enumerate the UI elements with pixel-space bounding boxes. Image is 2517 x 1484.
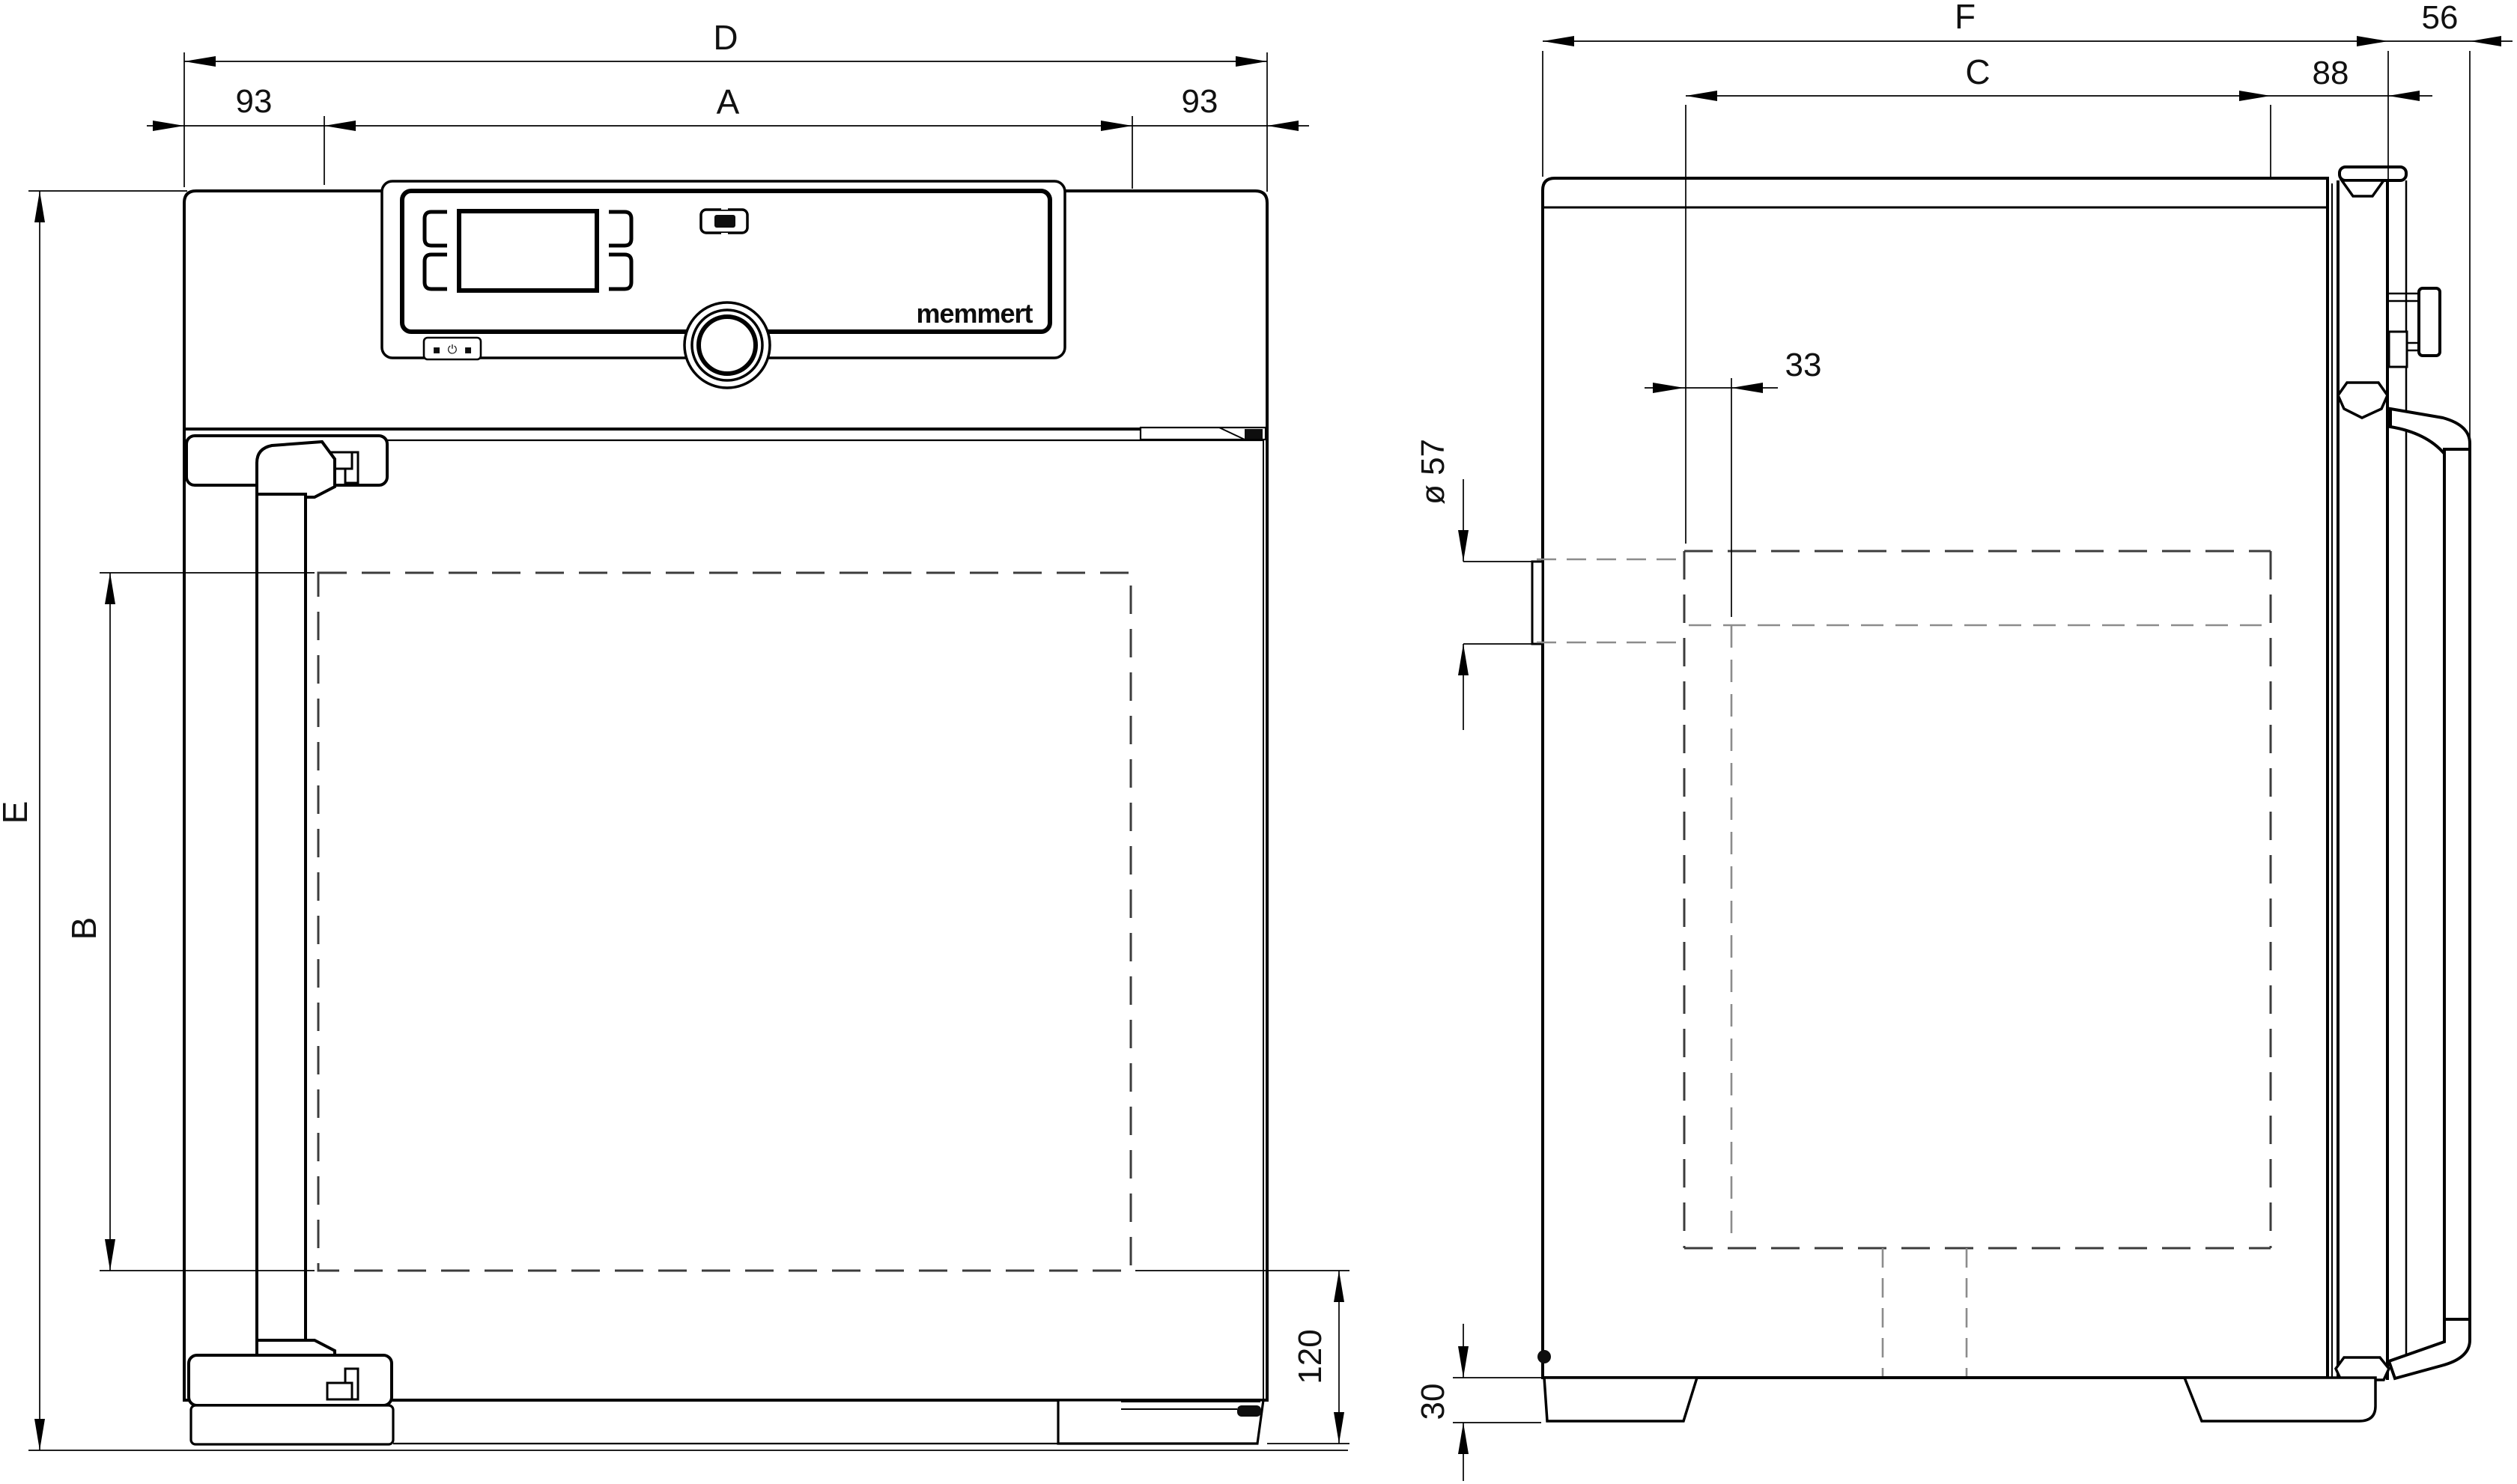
hinge-top-right [1141, 428, 1266, 440]
control-panel: memmert ▪ ⏻ ▪ [382, 181, 1065, 388]
door-handle [186, 436, 392, 1405]
dim-label-30: 30 [1415, 1384, 1451, 1420]
hinge-upper-knuckle [2338, 383, 2387, 418]
display-screen [459, 211, 597, 291]
front-feet [191, 1400, 1263, 1444]
dim-label-C: C [1965, 52, 1990, 91]
dim-label-F: F [1955, 0, 1976, 36]
brand-logo: memmert [916, 298, 1033, 329]
dimension-E: E [0, 191, 1348, 1450]
handle-bottom-arm [2389, 1319, 2470, 1378]
heat-indicator-icon: ▪ [433, 342, 441, 356]
dim-label-88: 88 [2313, 55, 2349, 91]
dim-label-120: 120 [1292, 1329, 1329, 1384]
dim-label-93-right: 93 [1182, 83, 1218, 120]
hinge-top-cap [2340, 167, 2406, 180]
door-latch-knob [2389, 288, 2440, 367]
front-view: memmert ▪ ⏻ ▪ [184, 181, 1267, 1444]
vent-pipe-dashed [1537, 559, 1967, 1376]
dimension-A-93: A 93 93 [147, 82, 1309, 189]
side-back-foot [1544, 1378, 1697, 1421]
handle-grip-bar [257, 494, 306, 1342]
cable-gland [1537, 1350, 1551, 1363]
dim-label-33: 33 [1785, 347, 1822, 383]
dim-label-D: D [713, 18, 738, 57]
vent-pipe-stub [1532, 562, 1543, 644]
hinge-top-notch [2342, 180, 2384, 196]
dim-label-93-left: 93 [236, 83, 273, 120]
dim-label-dia57: ø 57 [1415, 439, 1451, 505]
usable-space-dashed [1689, 625, 2262, 1243]
control-knob [684, 302, 770, 388]
interior-chamber-dashed-side [1684, 551, 2271, 1248]
front-right-foot [1058, 1400, 1263, 1444]
side-door-handle [2389, 409, 2470, 1378]
side-front-foot [2184, 1378, 2375, 1421]
dim-label-B: B [64, 917, 103, 940]
handle-bar-side [2444, 449, 2470, 1319]
side-body-outline [1543, 178, 2328, 1378]
side-view [1532, 167, 2470, 1421]
dimension-C-88: C 88 [1686, 52, 2432, 544]
dimension-dia57: ø 57 [1415, 439, 1541, 730]
technical-drawing-page: memmert ▪ ⏻ ▪ [0, 0, 2517, 1484]
side-feet [1544, 1378, 2375, 1421]
alarm-indicator-icon: ▪ [464, 342, 473, 356]
handle-bottom-plate [189, 1355, 392, 1405]
dim-label-56: 56 [2422, 0, 2459, 36]
interior-chamber-dashed-front [318, 573, 1131, 1271]
oven-dimension-drawing: memmert ▪ ⏻ ▪ [0, 0, 2517, 1484]
front-left-foot [191, 1405, 393, 1444]
side-dimensions: F 56 C 88 33 [1415, 0, 2513, 1481]
dimension-33: 33 [1645, 347, 1821, 617]
indicator-strip: ▪ ⏻ ▪ [424, 338, 481, 359]
power-icon: ⏻ [448, 342, 458, 356]
dimension-30: 30 [1415, 1324, 1544, 1481]
handle-top-bracket [257, 442, 335, 497]
dim-label-E: E [0, 801, 34, 824]
dim-label-A: A [717, 82, 740, 121]
